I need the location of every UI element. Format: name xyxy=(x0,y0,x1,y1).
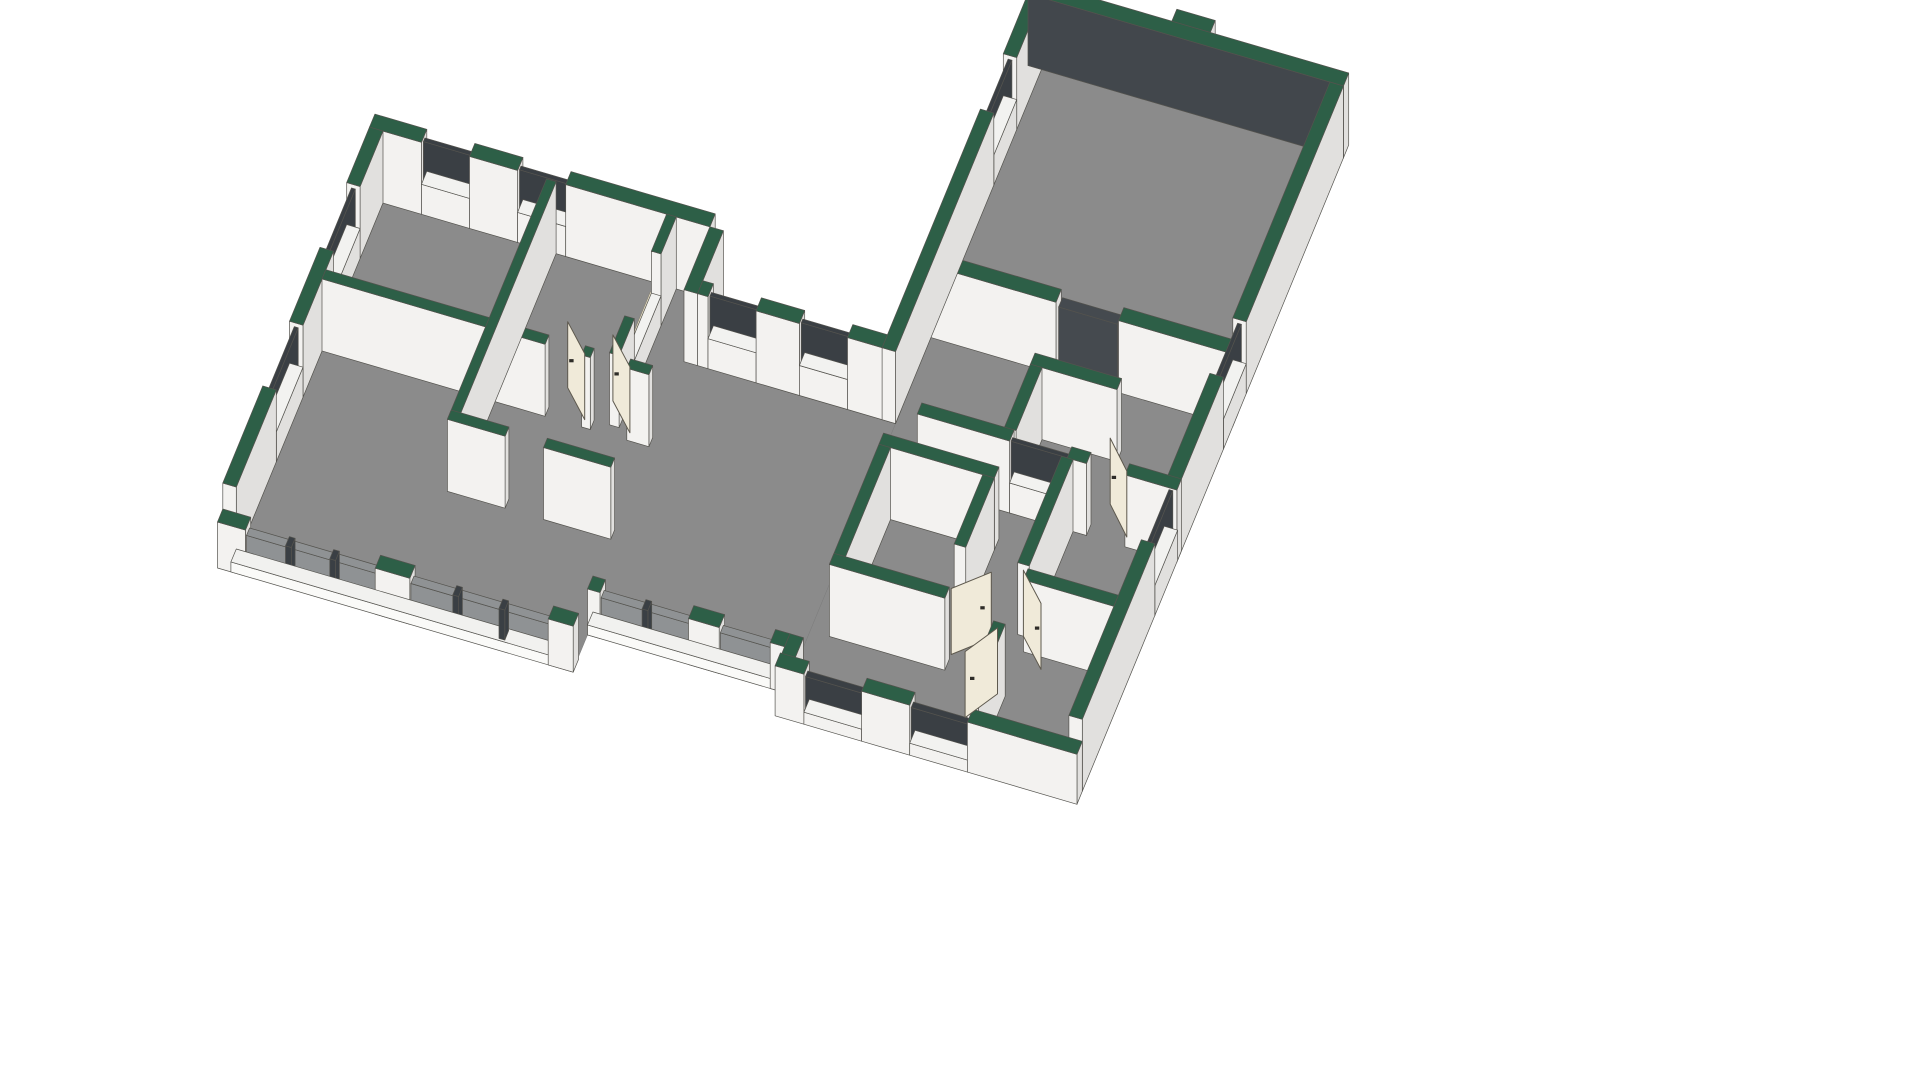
wall-face-east xyxy=(611,458,615,539)
wall-face-south xyxy=(775,666,804,724)
door-handle-icon xyxy=(1035,627,1039,630)
wall-face-east xyxy=(505,427,509,508)
wall-face-south xyxy=(684,290,698,366)
wall-face-east xyxy=(545,335,549,416)
wall-face-east xyxy=(649,366,653,447)
axonometric-floor-plan-viewport xyxy=(0,0,1920,1080)
wall-face-south xyxy=(698,294,709,369)
door-handle-icon xyxy=(1112,476,1116,479)
door-handle-icon xyxy=(970,677,974,680)
door-handle-icon xyxy=(980,606,984,609)
wall-face-east xyxy=(1087,452,1092,535)
floor-plan-svg xyxy=(0,0,1920,1080)
door-handle-icon xyxy=(614,372,618,375)
door-handle-icon xyxy=(569,359,573,362)
wall-face-south xyxy=(470,156,518,242)
wall-face-east xyxy=(1343,73,1348,158)
wall-face-east xyxy=(994,467,999,550)
floor-plan-render-area xyxy=(0,0,1920,1080)
wall-face-east xyxy=(1117,379,1122,462)
wall-face-east xyxy=(945,587,950,670)
wall-face-south xyxy=(756,311,799,396)
wall-face-east xyxy=(590,348,594,429)
wall-face-south xyxy=(548,619,573,672)
wall-face-south xyxy=(499,608,505,640)
wall-face-south xyxy=(882,348,895,424)
